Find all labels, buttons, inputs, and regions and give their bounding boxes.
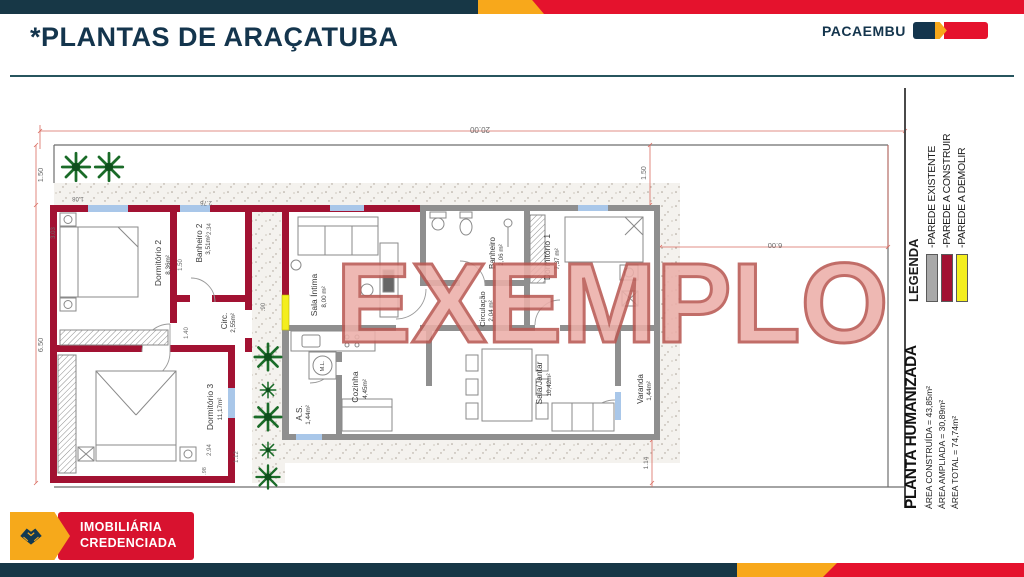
legend: LEGENDA -PAREDE EXISTENTE -PAREDE A CONS… xyxy=(906,90,998,302)
room-label-cozinha: Cozinha xyxy=(350,371,360,402)
bottombar-teal-segment xyxy=(0,563,737,577)
legend-title: LEGENDA xyxy=(906,90,921,302)
room-area-cozinha: 4,45m² xyxy=(362,379,369,399)
dim-098: .98 xyxy=(202,467,208,475)
area-built: ÁREA CONSTRUÍDA = 43,85m² xyxy=(924,283,934,509)
brand-logo-icon xyxy=(913,22,988,39)
room-area-sala-jantar: 10,42m² xyxy=(546,373,553,396)
dim-294: 2.94 xyxy=(207,444,213,456)
room-area-as: 1,44m² xyxy=(305,405,312,425)
room-label-sala-intima: Sala Íntima xyxy=(309,273,319,316)
dim-303: 3.03 xyxy=(51,227,57,239)
area-total: ÁREA TOTAL = 74,74m² xyxy=(950,283,960,509)
room-area-banheiro-2: 3,51m² xyxy=(205,235,212,255)
dim-276: 2.76 xyxy=(200,199,212,205)
legend-item-demolish: -PAREDE A DEMOLIR xyxy=(956,90,968,302)
badge-line-1: IMOBILIÁRIA xyxy=(80,520,194,536)
logo-navy-block xyxy=(913,22,937,39)
washer-label: M.L. xyxy=(320,360,326,371)
page-title: *PLANTAS DE ARAÇATUBA xyxy=(30,22,399,53)
room-label-dormitorio-2: Dormitório 2 xyxy=(153,240,163,287)
plan-title-block: PLANTA HUMANIZADA ÁREA CONSTRUÍDA = 43,8… xyxy=(903,283,967,509)
dim-right-setback: 1.50 xyxy=(641,166,648,180)
topbar-teal-segment xyxy=(0,0,478,14)
brand-name: PACAEMBU xyxy=(822,23,906,39)
logo-red-block xyxy=(944,22,988,39)
room-label-varanda: Varanda xyxy=(636,374,645,404)
badge-text-panel: IMOBILIÁRIA CREDENCIADA xyxy=(58,512,194,560)
dim-114: 1.14 xyxy=(643,456,650,469)
room-label-circ: Circ. xyxy=(220,313,229,329)
legend-label-existing: -PAREDE EXISTENTE xyxy=(926,146,938,248)
dim-108: 1.08 xyxy=(72,195,84,201)
dim-front-setback: 1.50 xyxy=(36,168,45,183)
legend-item-existing: -PAREDE EXISTENTE xyxy=(926,90,938,302)
legend-label-construct: -PAREDE A CONSTRUIR xyxy=(941,134,953,248)
room-area-sala-intima: 8,00 m² xyxy=(321,286,328,307)
room-area-dormitorio-3: 11,17m² xyxy=(217,398,224,421)
header-divider xyxy=(10,75,1014,77)
legend-item-construct: -PAREDE A CONSTRUIR xyxy=(941,90,953,302)
back-yard-band xyxy=(285,440,680,463)
badge-line-2: CREDENCIADA xyxy=(80,536,194,552)
room-area-circ: 2,55m² xyxy=(230,313,237,333)
room-area-dormitorio-2: 8,36m² xyxy=(165,255,172,275)
dim-112: 1.12 xyxy=(234,451,240,463)
dim-090: .90 xyxy=(261,302,267,311)
area-expanded: ÁREA AMPLIADA = 30,89m² xyxy=(937,283,947,509)
accredited-badge: IMOBILIÁRIA CREDENCIADA xyxy=(10,512,194,560)
dim-234: 2.34 xyxy=(207,223,213,235)
room-label-as: A.S. xyxy=(295,405,304,420)
bottombar-yellow-segment xyxy=(737,563,837,577)
bottombar-red-segment xyxy=(818,563,1024,577)
dim-lot-depth: 6.50 xyxy=(36,338,45,353)
dim-lot-width: 20.00 xyxy=(469,125,490,134)
room-label-dormitorio-3: Dormitório 3 xyxy=(205,384,215,431)
brand-logo: PACAEMBU xyxy=(822,22,988,39)
front-sidewalk-band xyxy=(54,183,680,205)
room-label-banheiro-2: Banheiro 2 xyxy=(195,223,204,262)
handshake-icon xyxy=(16,523,46,549)
topbar-red-segment xyxy=(520,0,1024,14)
room-area-varanda: 1,44m² xyxy=(646,381,653,401)
room-label-sala-jantar: Sala/Jantar xyxy=(534,361,544,404)
legend-label-demolish: -PAREDE A DEMOLIR xyxy=(956,148,968,248)
dim-140: 1.40 xyxy=(184,327,190,339)
plan-type-title: PLANTA HUMANIZADA xyxy=(903,283,921,509)
dim-bath2-width: 1.50 xyxy=(178,259,184,271)
slide: *PLANTAS DE ARAÇATUBA PACAEMBU xyxy=(0,0,1024,577)
watermark-text: EXEMPLO xyxy=(336,247,889,360)
